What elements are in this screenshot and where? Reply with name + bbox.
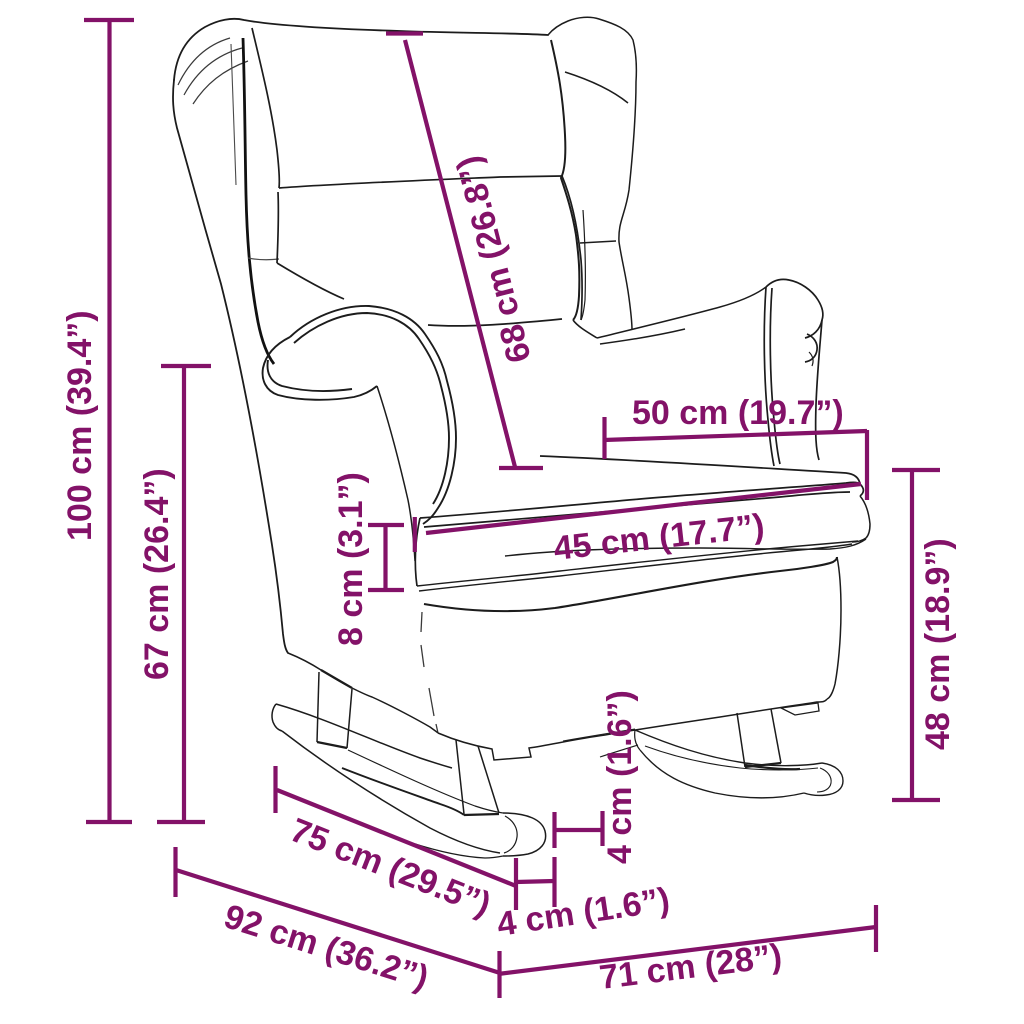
svg-text:8 cm (3.1”): 8 cm (3.1”) (332, 472, 370, 646)
svg-text:100 cm (39.4”): 100 cm (39.4”) (61, 310, 99, 541)
svg-text:50 cm (19.7”): 50 cm (19.7”) (632, 394, 844, 432)
svg-text:4 cm (1.6”): 4 cm (1.6”) (601, 690, 639, 864)
svg-text:48 cm (18.9”): 48 cm (18.9”) (919, 538, 957, 750)
svg-text:67 cm (26.4”): 67 cm (26.4”) (138, 468, 176, 680)
